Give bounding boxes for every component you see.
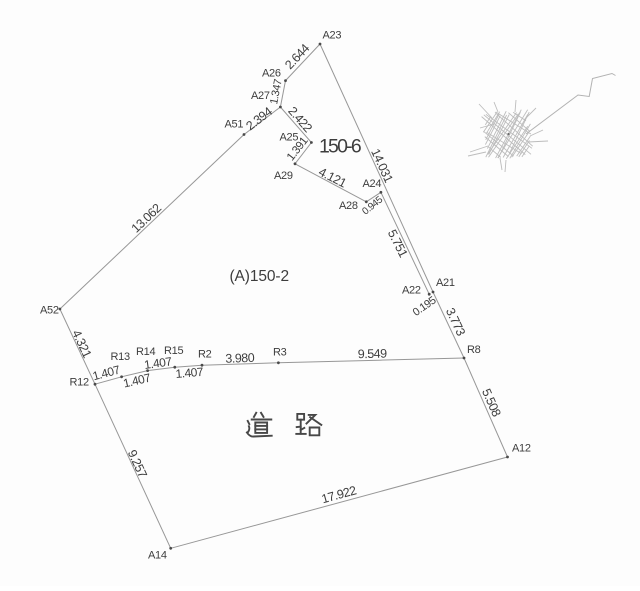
svg-text:A24: A24 (363, 178, 382, 190)
svg-text:A21: A21 (436, 277, 455, 289)
svg-text:A51: A51 (225, 119, 244, 131)
svg-text:A27: A27 (251, 90, 270, 102)
svg-text:A29: A29 (274, 170, 293, 182)
svg-text:A28: A28 (339, 200, 358, 212)
svg-text:A14: A14 (148, 550, 167, 562)
svg-text:9.549: 9.549 (358, 347, 388, 362)
svg-text:A12: A12 (512, 443, 531, 455)
svg-text:A52: A52 (40, 305, 59, 317)
svg-text:1.407: 1.407 (175, 365, 204, 381)
svg-text:R2: R2 (198, 349, 212, 361)
svg-text:A26: A26 (262, 68, 281, 80)
svg-text:(A)150-2: (A)150-2 (230, 268, 290, 285)
svg-text:3.980: 3.980 (225, 351, 255, 366)
svg-text:R13: R13 (111, 351, 130, 363)
svg-text:R3: R3 (273, 347, 287, 359)
svg-text:A22: A22 (402, 285, 421, 297)
svg-text:R12: R12 (70, 377, 89, 389)
svg-text:150-6: 150-6 (319, 136, 361, 158)
svg-text:A23: A23 (323, 30, 342, 42)
svg-text:R8: R8 (467, 344, 481, 356)
